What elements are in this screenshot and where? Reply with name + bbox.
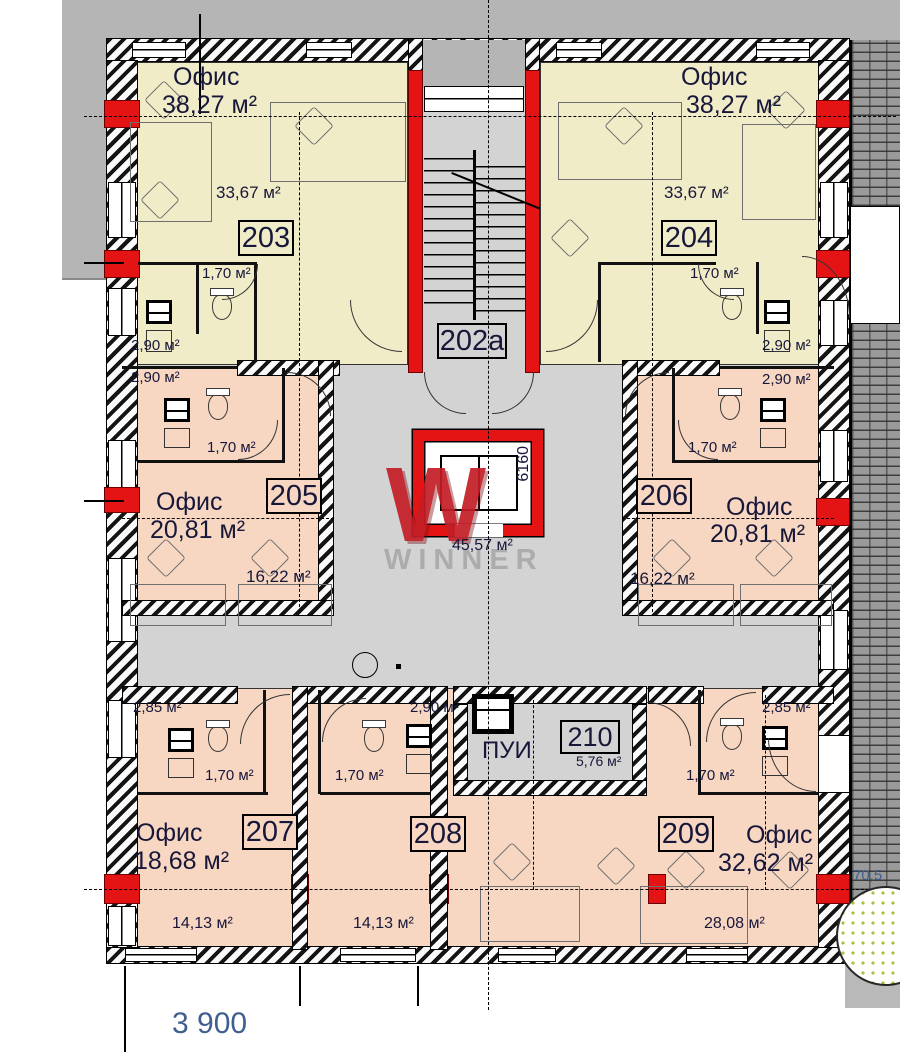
room-203-name: Офис [173, 64, 239, 90]
room-207-name: Офис [136, 820, 202, 846]
room-206-area-main: 16,22 м² [630, 570, 695, 588]
room-207-area-main: 14,13 м² [172, 916, 233, 933]
room-204-area-wc: 1,70 м² [690, 266, 739, 282]
room-205-number: 205 [270, 480, 318, 513]
outside-area-top [62, 0, 900, 40]
width-dimension: 3 900 [172, 1008, 247, 1040]
axis-tick [84, 500, 124, 502]
bath-wall [138, 460, 284, 463]
room-204-name: Офис [681, 64, 747, 90]
room-209-area-total: 32,62 м² [718, 850, 813, 876]
desk [238, 584, 332, 626]
room-204-area-bath: 2,90 м² [762, 338, 811, 354]
sink-icon [406, 724, 432, 748]
room-208-area-wc: 1,70 м² [335, 768, 384, 784]
window [306, 42, 352, 58]
room-210-number-box: 210 [560, 720, 620, 754]
room-203-area-main: 33,67 м² [216, 184, 281, 202]
toilet-icon [720, 394, 740, 420]
bath-wall [282, 368, 285, 463]
room-205-area-total: 20,81 м² [150, 517, 245, 543]
stair-entry-window [424, 86, 524, 112]
room-209-number: 209 [662, 818, 710, 851]
sink-icon [760, 398, 786, 422]
column [104, 250, 140, 278]
cabinet-icon [406, 754, 432, 774]
dimension-line [124, 966, 126, 1052]
cabinet-icon [168, 758, 194, 778]
stair-flight-right [476, 166, 525, 316]
axis-line [84, 889, 884, 890]
bath-wall [756, 262, 759, 334]
bath-wall [318, 690, 321, 794]
window [556, 42, 602, 58]
room-204-area-total: 38,27 м² [686, 92, 781, 118]
room-206-number-box: 206 [636, 478, 692, 514]
room-204-area-main: 33,67 м² [664, 184, 729, 202]
room-205-name: Офис [156, 489, 222, 515]
room-207-area-wc: 1,70 м² [205, 768, 254, 784]
shaft-dimension: 6160 [516, 446, 533, 482]
window [340, 948, 416, 962]
axis-line [533, 695, 534, 890]
desk [480, 886, 580, 942]
axis-line [652, 112, 653, 612]
corridor-dot-symbol [396, 664, 401, 669]
stair-porch [423, 40, 525, 88]
column [816, 100, 850, 128]
stairwell-number-box: 202a [437, 323, 507, 359]
stairwell-number: 202a [440, 326, 505, 356]
axis-line [488, 0, 489, 1010]
column [816, 498, 850, 526]
room-205-area-bath: 2,90 м² [131, 370, 180, 386]
room-206-name: Офис [726, 494, 792, 520]
bath-wall [698, 792, 818, 795]
toilet-icon [364, 726, 384, 752]
room-204-number-box: 204 [661, 220, 717, 256]
room-209-area-wc: 1,70 м² [686, 768, 735, 784]
bath-wall [138, 792, 268, 795]
room-204-number: 204 [665, 222, 713, 255]
room-209-name: Офис [746, 822, 812, 848]
sink-icon [164, 398, 190, 422]
room-206-area-bath: 2,90 м² [762, 372, 811, 388]
bath-wall [598, 262, 601, 362]
room-207-number-box: 207 [242, 814, 298, 850]
bath-wall [672, 460, 818, 463]
desk [130, 584, 226, 626]
stair-wall-top-left [408, 38, 423, 72]
cabinet-icon [760, 428, 786, 448]
sink-icon [168, 728, 194, 752]
room-203-area-wc: 1,70 м² [202, 266, 251, 282]
window [820, 182, 848, 238]
room-207-number: 207 [246, 816, 294, 849]
room-205-area-wc: 1,70 м² [207, 440, 256, 456]
cabinet-icon [164, 428, 190, 448]
outside-area-left [62, 0, 110, 280]
window [820, 430, 848, 482]
window [108, 440, 136, 490]
window [132, 42, 186, 58]
room-205-area-main: 16,22 м² [246, 568, 311, 586]
axis-line [299, 112, 300, 612]
room-205-number-box: 205 [266, 478, 322, 514]
wall-210-bottom [453, 780, 647, 796]
room-208-number-box: 208 [410, 816, 466, 852]
window [756, 42, 810, 58]
room-203-area-total: 38,27 м² [162, 92, 257, 118]
lobby-area: 45,57 м² [452, 538, 513, 555]
dimension-line [299, 966, 301, 1006]
door-opening-right [818, 735, 850, 793]
room-203-number: 203 [242, 222, 290, 255]
floor-plan: 202a [0, 0, 900, 1064]
window [686, 948, 748, 962]
room-206-area-total: 20,81 м² [710, 521, 805, 547]
desk [740, 584, 832, 626]
room-206-number: 206 [640, 480, 688, 513]
room-208-number: 208 [414, 818, 462, 851]
window [108, 700, 136, 758]
room-207-area-total: 18,68 м² [134, 848, 229, 874]
desk [270, 102, 406, 182]
room-210-area: 5,76 м² [576, 754, 621, 769]
stair-divider [473, 150, 476, 320]
bath-wall [672, 368, 675, 463]
edge-dimension: 70,5 [853, 868, 882, 884]
room-209-area-bath: 2,85 м² [762, 700, 811, 716]
dimension-line [417, 966, 419, 1006]
room-208-area-main: 14,13 м² [353, 916, 414, 933]
corridor-circle-symbol [352, 652, 378, 678]
room-203-number-box: 203 [238, 220, 294, 256]
toilet-icon [208, 726, 228, 752]
toilet-icon [208, 394, 228, 420]
room-206-area-wc: 1,70 м² [688, 440, 737, 456]
wall-divider-hatch [630, 360, 720, 376]
room-208-area-bath: 2,90 м² [410, 700, 459, 716]
room-203-area-bath: 2,90 м² [131, 338, 180, 354]
window [108, 288, 136, 336]
electric-panel [472, 694, 514, 734]
desk [742, 124, 816, 220]
room-209-number-box: 209 [658, 816, 714, 852]
room-210-name: ПУИ [482, 738, 532, 763]
wall-corridor-bottom [648, 686, 704, 704]
entrance-opening-brick [850, 206, 900, 324]
axis-tick [84, 262, 124, 264]
room-207-area-bath: 2,85 м² [133, 700, 182, 716]
window [108, 906, 136, 946]
bath-wall [196, 262, 199, 334]
brick-wall-right [850, 40, 900, 962]
bath-wall [320, 792, 430, 795]
room-210-number: 210 [567, 722, 612, 753]
sink-icon [146, 300, 172, 324]
sink-icon [764, 300, 790, 324]
room-209-area-main: 28,08 м² [704, 916, 765, 933]
stair-wall-top-right [525, 38, 540, 72]
window [498, 948, 556, 962]
window [125, 948, 197, 962]
